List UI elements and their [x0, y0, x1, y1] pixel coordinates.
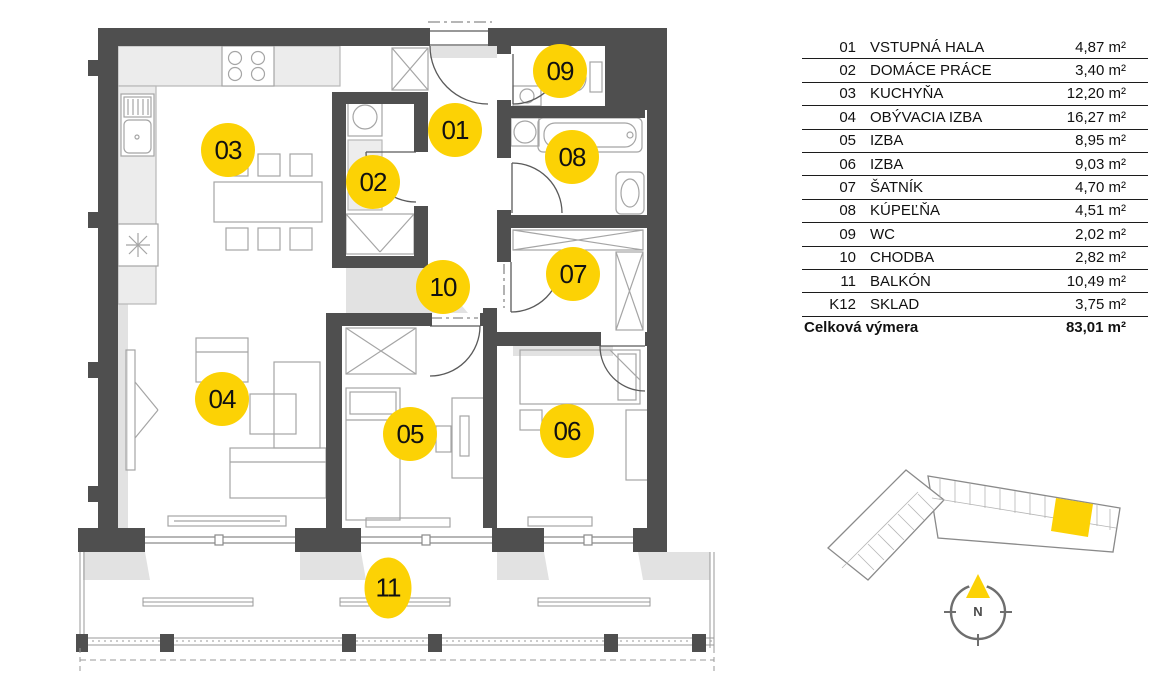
legend-row: 09WC2,02 m²: [802, 223, 1148, 246]
room-marker-06: 06: [540, 404, 594, 458]
legend-num: 02: [802, 62, 870, 79]
railing-posts: [76, 634, 706, 652]
legend-area: 8,95 m²: [1006, 132, 1148, 149]
room-marker-01: 01: [428, 103, 482, 157]
legend-area: 12,20 m²: [1006, 85, 1148, 102]
radiator: [528, 517, 592, 526]
legend-num: 10: [802, 249, 870, 266]
room-marker-10: 10: [416, 260, 470, 314]
legend-name: DOMÁCE PRÁCE: [870, 62, 1006, 79]
legend-num: 01: [802, 39, 870, 56]
compass-n-label: N: [973, 604, 982, 619]
room-marker-03: 03: [201, 123, 255, 177]
room-legend: 01VSTUPNÁ HALA4,87 m²02DOMÁCE PRÁCE3,40 …: [802, 36, 1148, 339]
room-marker-09: 09: [533, 44, 587, 98]
legend-name: VSTUPNÁ HALA: [870, 39, 1006, 56]
legend-name: IZBA: [870, 132, 1006, 149]
toilet-tank: [590, 62, 602, 92]
legend-name: BALKÓN: [870, 273, 1006, 290]
legend-num: 06: [802, 156, 870, 173]
legend-num: 04: [802, 109, 870, 126]
washbasin: [616, 172, 644, 214]
legend-row: 02DOMÁCE PRÁCE3,40 m²: [802, 59, 1148, 82]
legend-num: 05: [802, 132, 870, 149]
legend-area: 9,03 m²: [1006, 156, 1148, 173]
legend-area: 4,70 m²: [1006, 179, 1148, 196]
legend-num: K12: [802, 296, 870, 313]
sink: [514, 121, 536, 143]
legend-num: 07: [802, 179, 870, 196]
radiator: [366, 518, 450, 527]
legend-rows: 01VSTUPNÁ HALA4,87 m²02DOMÁCE PRÁCE3,40 …: [802, 36, 1148, 317]
legend-row: 06IZBA9,03 m²: [802, 153, 1148, 176]
floor-plan-page: N 0102030405060708091011 01VSTUPNÁ HALA4…: [0, 0, 1164, 678]
desk-chair: [436, 426, 451, 452]
legend-name: ŠATNÍK: [870, 179, 1006, 196]
building-minimap: [828, 470, 1120, 580]
stove: [222, 46, 274, 86]
legend-area: 16,27 m²: [1006, 109, 1148, 126]
compass: N: [944, 568, 1012, 646]
legend-area: 4,51 m²: [1006, 202, 1148, 219]
legend-row: 07ŠATNÍK4,70 m²: [802, 176, 1148, 199]
legend-name: KUCHYŇA: [870, 85, 1006, 102]
room-marker-05: 05: [383, 407, 437, 461]
sink-counter: [511, 118, 539, 146]
legend-row: K12SKLAD3,75 m²: [802, 293, 1148, 316]
minimap-wing-diagonal: [828, 470, 944, 580]
legend-num: 08: [802, 202, 870, 219]
nightstand: [520, 410, 542, 430]
legend-num: 09: [802, 226, 870, 243]
legend-row: 05IZBA8,95 m²: [802, 130, 1148, 153]
sofa: [230, 448, 326, 498]
legend-total-area: 83,01 m²: [1006, 319, 1148, 336]
legend-area: 2,82 m²: [1006, 249, 1148, 266]
legend-num: 11: [802, 273, 870, 290]
legend-area: 4,87 m²: [1006, 39, 1148, 56]
legend-name: WC: [870, 226, 1006, 243]
wardrobe: [346, 214, 414, 254]
room-marker-08: 08: [545, 130, 599, 184]
legend-area: 3,75 m²: [1006, 296, 1148, 313]
legend-row: 04OBÝVACIA IZBA16,27 m²: [802, 106, 1148, 129]
legend-total-label: Celková výmera: [802, 319, 1006, 336]
legend-row: 08KÚPEĽŇA4,51 m²: [802, 200, 1148, 223]
legend-row: 01VSTUPNÁ HALA4,87 m²: [802, 36, 1148, 59]
legend-area: 3,40 m²: [1006, 62, 1148, 79]
coffee-table: [250, 394, 296, 434]
room-marker-04: 04: [195, 372, 249, 426]
room-marker-11: 11: [365, 558, 412, 619]
living-room-furniture: [126, 338, 326, 526]
bed: [520, 350, 640, 404]
legend-row: 03KUCHYŇA12,20 m²: [802, 83, 1148, 106]
entrance-door: [428, 22, 492, 104]
legend-row: 10CHODBA2,82 m²: [802, 247, 1148, 270]
legend-name: IZBA: [870, 156, 1006, 173]
legend-name: KÚPEĽŇA: [870, 202, 1006, 219]
minimap-unit-highlight: [1051, 498, 1093, 537]
room05-door: [430, 318, 480, 376]
legend-area: 10,49 m²: [1006, 273, 1148, 290]
desk: [626, 410, 650, 480]
legend-num: 03: [802, 85, 870, 102]
shelf: [274, 362, 320, 448]
legend-name: SKLAD: [870, 296, 1006, 313]
dining-table: [214, 182, 322, 222]
room-marker-07: 07: [546, 247, 600, 301]
legend-row: 11BALKÓN10,49 m²: [802, 270, 1148, 293]
legend-area: 2,02 m²: [1006, 226, 1148, 243]
legend-total-row: Celková výmera 83,01 m²: [802, 317, 1148, 339]
balcony-windows: [145, 530, 633, 550]
legend-name: CHODBA: [870, 249, 1006, 266]
room-marker-02: 02: [346, 155, 400, 209]
legend-name: OBÝVACIA IZBA: [870, 109, 1006, 126]
